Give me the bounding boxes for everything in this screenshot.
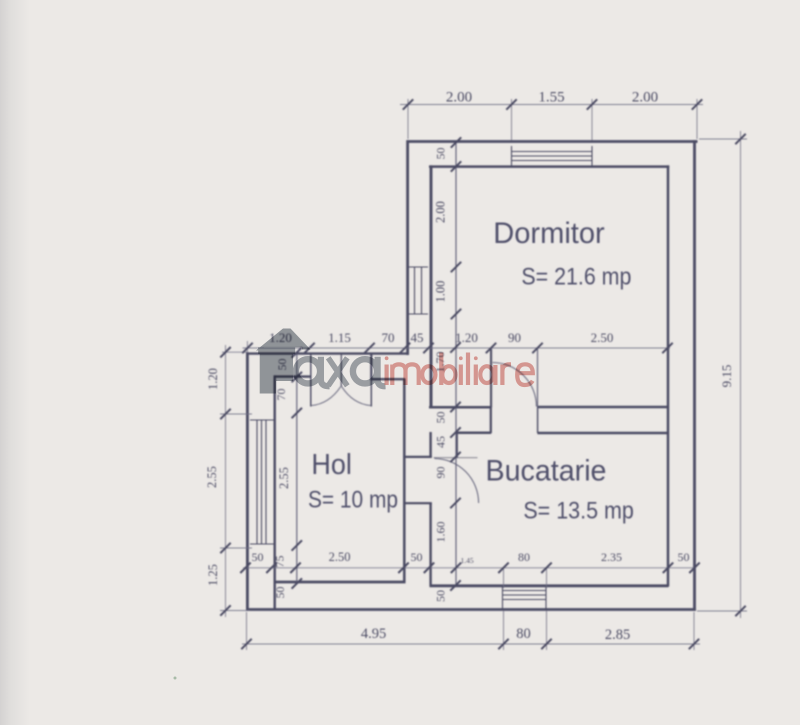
svg-text:1.20: 1.20 <box>455 330 478 345</box>
svg-text:S= 10 mp: S= 10 mp <box>308 487 398 514</box>
svg-text:Dormitor: Dormitor <box>493 217 605 250</box>
svg-text:2.00: 2.00 <box>632 90 658 106</box>
svg-text:50: 50 <box>434 148 448 160</box>
svg-text:4.95: 4.95 <box>361 626 386 642</box>
svg-text:90: 90 <box>508 330 521 345</box>
svg-text:50: 50 <box>434 412 448 424</box>
svg-text:S= 21.6 mp: S= 21.6 mp <box>521 263 631 290</box>
svg-text:1.25: 1.25 <box>206 564 220 586</box>
svg-text:2.55: 2.55 <box>205 466 219 488</box>
svg-text:80: 80 <box>518 550 530 564</box>
svg-text:1.45: 1.45 <box>460 556 473 565</box>
svg-text:50: 50 <box>678 550 690 564</box>
svg-text:1.20: 1.20 <box>206 368 220 390</box>
svg-text:45: 45 <box>434 436 448 448</box>
svg-text:2.00: 2.00 <box>446 90 472 106</box>
svg-text:50: 50 <box>273 587 287 599</box>
svg-text:S= 13.5 mp: S= 13.5 mp <box>523 497 634 524</box>
svg-text:50: 50 <box>411 550 423 564</box>
svg-text:45: 45 <box>411 330 424 345</box>
svg-text:1.55: 1.55 <box>538 90 564 106</box>
svg-text:50: 50 <box>252 550 264 564</box>
svg-text:90: 90 <box>434 467 448 479</box>
svg-text:80: 80 <box>516 626 531 642</box>
svg-text:50: 50 <box>434 590 448 602</box>
svg-text:1.00: 1.00 <box>434 281 448 303</box>
svg-text:9.15: 9.15 <box>719 365 734 388</box>
svg-text:Bucatarie: Bucatarie <box>486 454 607 487</box>
svg-text:1.15: 1.15 <box>328 330 351 345</box>
svg-text:70: 70 <box>382 330 395 345</box>
svg-text:2.00: 2.00 <box>434 201 448 223</box>
svg-text:2.55: 2.55 <box>277 467 291 489</box>
svg-text:2.50: 2.50 <box>591 330 614 345</box>
svg-text:75: 75 <box>273 556 287 568</box>
svg-text:2.50: 2.50 <box>329 550 351 564</box>
svg-text:70: 70 <box>274 389 288 401</box>
svg-text:2.85: 2.85 <box>605 627 630 643</box>
svg-text:Hol: Hol <box>311 449 352 481</box>
svg-text:2.35: 2.35 <box>601 550 622 564</box>
svg-text:1.60: 1.60 <box>434 522 448 543</box>
